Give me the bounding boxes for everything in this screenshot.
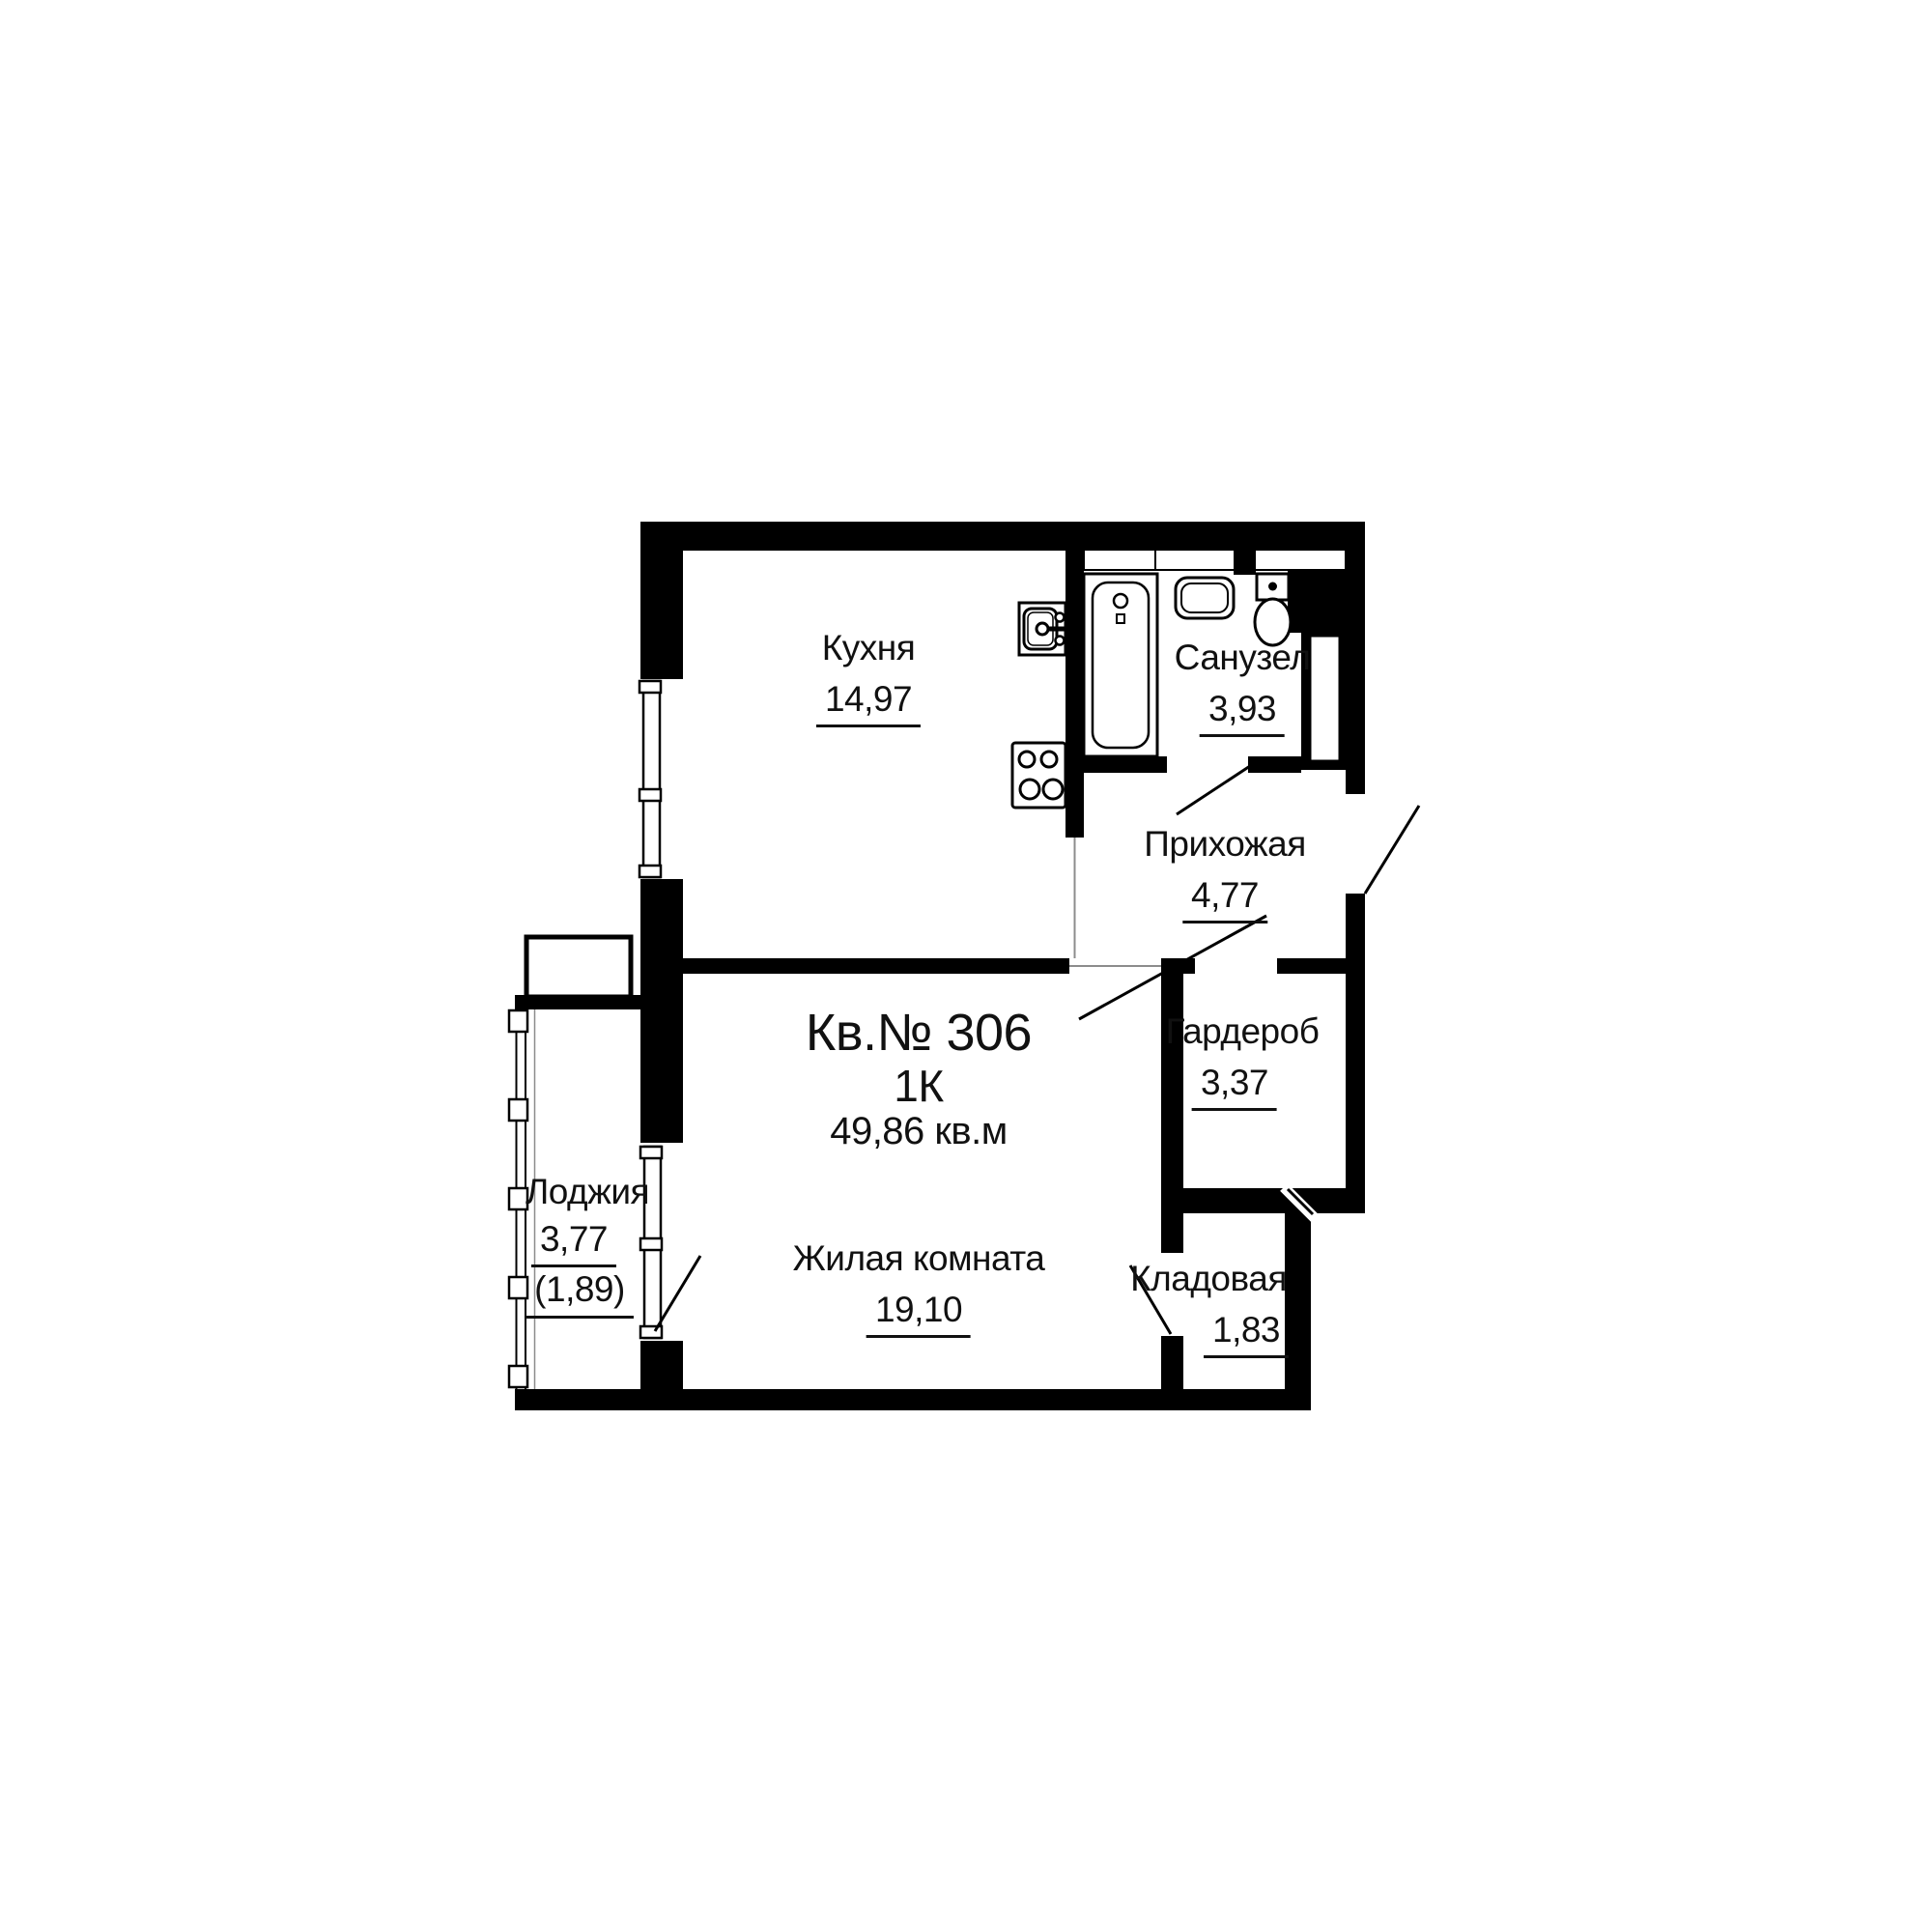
stove-icon [1012,743,1065,808]
room-name: Гардероб [1166,1011,1320,1053]
room-area: 1,83 [1204,1310,1289,1359]
room-label-wardrobe: Гардероб 3,37 [1166,1011,1320,1113]
ventilation-shaft-icon [1309,635,1341,762]
room-label-living-room: Жилая комната 19,10 [793,1238,1045,1340]
apartment-info: Кв.№ 306 1К 49,86 кв.м [806,1005,1032,1153]
apartment-number: Кв.№ 306 [806,1005,1032,1062]
room-area: 4,77 [1144,875,1305,924]
room-name: Жилая комната [793,1238,1045,1280]
room-label-loggia: Лоджия 3,77 (1,89) [526,1172,649,1321]
floor-plan-drawing [0,0,1932,1932]
room-label-hallway: Прихожая 4,77 [1144,824,1305,925]
kitchen-window-icon [639,681,661,877]
room-label-bathroom: Санузел 3,93 [1175,638,1311,739]
room-name: Прихожая [1144,824,1305,866]
kitchen-sink-icon [1019,603,1065,655]
room-name: Санузел [1175,638,1311,679]
apartment-total-area: 49,86 кв.м [806,1110,1032,1153]
room-area: 3,77 [498,1219,649,1268]
balcony-door-icon [640,1147,700,1338]
room-label-storage: Кладовая 1,83 [1128,1259,1289,1360]
room-area: 19,10 [793,1290,1045,1339]
toilet-icon [1255,574,1291,645]
room-area: 3,93 [1175,689,1311,738]
apartment-rooms-type: 1К [806,1062,1032,1111]
room-name: Кухня [816,628,921,669]
room-area-reduced: (1,89) [510,1269,649,1319]
floor-plan: Кухня 14,97 Санузел 3,93 Прихожая 4,77 Г… [0,0,1932,1932]
room-name: Кладовая [1128,1259,1289,1300]
room-area: 3,37 [1151,1063,1320,1112]
bathroom-door-swing [1177,766,1250,814]
washbasin-icon [1176,578,1234,618]
room-area: 14,97 [816,679,921,728]
loggia-parapet-box [526,937,631,997]
room-name: Лоджия [526,1172,649,1213]
bathtub-icon [1084,574,1157,756]
room-label-kitchen: Кухня 14,97 [816,628,921,729]
entrance-door-swing [1365,806,1419,894]
